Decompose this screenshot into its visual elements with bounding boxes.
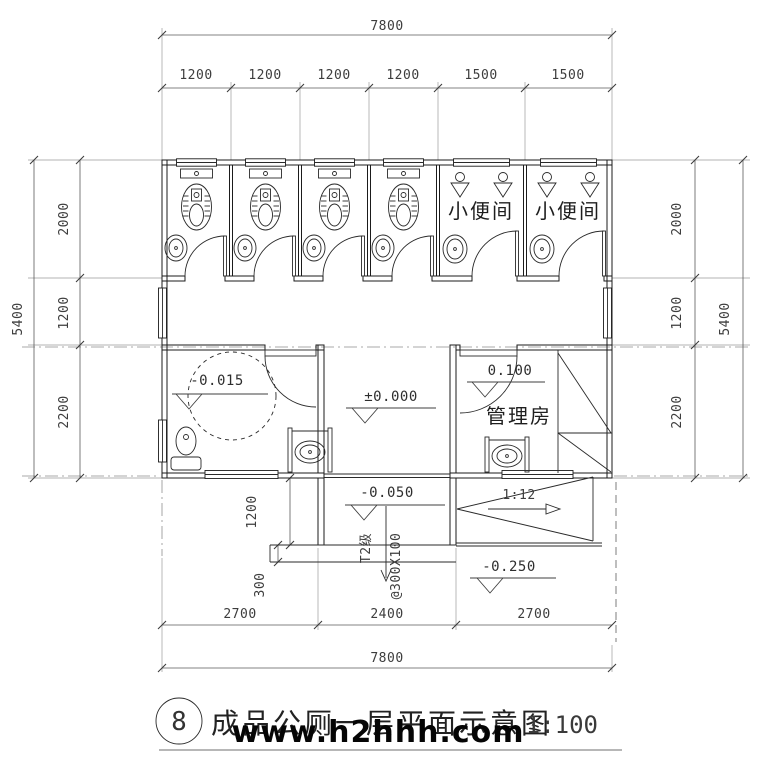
door-swing	[323, 236, 363, 276]
floor-plan-drawing: 7800 1200 1200 1200 1200 1500 1500 5400 …	[0, 0, 770, 758]
door-leaf	[431, 236, 434, 276]
door-leaf	[516, 231, 519, 276]
dim-left-2: 1200	[57, 296, 72, 329]
squat-toilet	[251, 184, 281, 230]
drawing-sheet: 7800 1200 1200 1200 1200 1500 1500 5400 …	[0, 0, 770, 758]
dim-bottom-2: 2400	[370, 607, 403, 622]
steps-note: T2级	[359, 533, 374, 563]
door-swing	[559, 231, 604, 276]
dim-left-3: 2200	[57, 395, 72, 428]
dim-top-5: 1500	[464, 68, 497, 83]
watermark: www.h2hhh.com	[232, 715, 525, 750]
dim-top-3: 1200	[317, 68, 350, 83]
squat-toilet	[389, 184, 419, 230]
urinal-room	[443, 173, 519, 277]
dim-right-3: 2200	[670, 395, 685, 428]
dim-right-2: 1200	[670, 296, 685, 329]
urinal	[499, 173, 508, 182]
toilet-stall	[372, 169, 434, 276]
urinal	[543, 173, 552, 182]
door-swing	[185, 236, 225, 276]
detail-number: 8	[171, 707, 187, 737]
accessible-toilet-room	[171, 350, 332, 472]
toilet-stall	[303, 169, 365, 276]
urinal	[586, 173, 595, 182]
washbasin	[492, 445, 522, 467]
door-swing	[472, 231, 517, 276]
dim-top-1: 1200	[179, 68, 212, 83]
tread-note: @300X100	[389, 533, 404, 600]
dim-right-1: 2000	[670, 202, 685, 235]
level-grade: -0.250	[482, 559, 536, 575]
dim-bottom-1: 2700	[223, 607, 256, 622]
dim-left-1: 2000	[57, 202, 72, 235]
cistern	[319, 169, 351, 178]
level-accessible: -0.015	[190, 373, 244, 389]
level-manager: 0.100	[488, 363, 533, 379]
dimension-text: 7800 1200 1200 1200 1200 1500 1500 5400 …	[11, 19, 733, 666]
dim-left-total: 5400	[11, 302, 26, 335]
room-label-urinal-1: 小便间	[448, 199, 514, 223]
cistern	[181, 169, 213, 178]
toilet-stall	[234, 169, 296, 276]
cistern	[388, 169, 420, 178]
door-swing	[392, 236, 432, 276]
dim-bottom-3: 2700	[517, 607, 550, 622]
squat-toilet	[320, 184, 350, 230]
dim-top-6: 1500	[551, 68, 584, 83]
dim-top-2: 1200	[248, 68, 281, 83]
urinal	[456, 173, 465, 182]
title-block: 8 成品公厕一层平面示意图 1:100 www.h2hhh.com	[156, 698, 622, 750]
door-leaf	[224, 236, 227, 276]
dim-step-depth: 300	[253, 573, 268, 598]
toilet-stall	[165, 169, 227, 276]
door-swing	[254, 236, 294, 276]
door-leaf	[362, 236, 365, 276]
room-labels: 小便间 小便间 管理房	[448, 199, 601, 428]
ramp-slope-note: 1:12	[502, 488, 535, 503]
squat-toilet	[182, 184, 212, 230]
drawing-scale: 1:100	[526, 711, 598, 739]
dim-bottom-total: 7800	[370, 651, 403, 666]
toilet	[176, 427, 196, 455]
dim-top-total: 7800	[370, 19, 403, 34]
dim-top-4: 1200	[386, 68, 419, 83]
door-leaf	[603, 231, 606, 276]
room-label-urinal-2: 小便间	[535, 199, 601, 223]
door-leaf	[293, 236, 296, 276]
urinal-room	[530, 173, 606, 277]
level-entry: ±0.000	[364, 389, 418, 405]
washbasin	[295, 441, 325, 463]
dim-right-total: 5400	[718, 302, 733, 335]
wheelchair-turning-circle	[188, 352, 276, 440]
ramp-direction-arrow	[546, 504, 560, 514]
dim-porch-depth: 1200	[245, 495, 260, 528]
level-porch: -0.050	[360, 485, 414, 501]
cistern	[250, 169, 282, 178]
room-label-manager: 管理房	[486, 404, 552, 428]
